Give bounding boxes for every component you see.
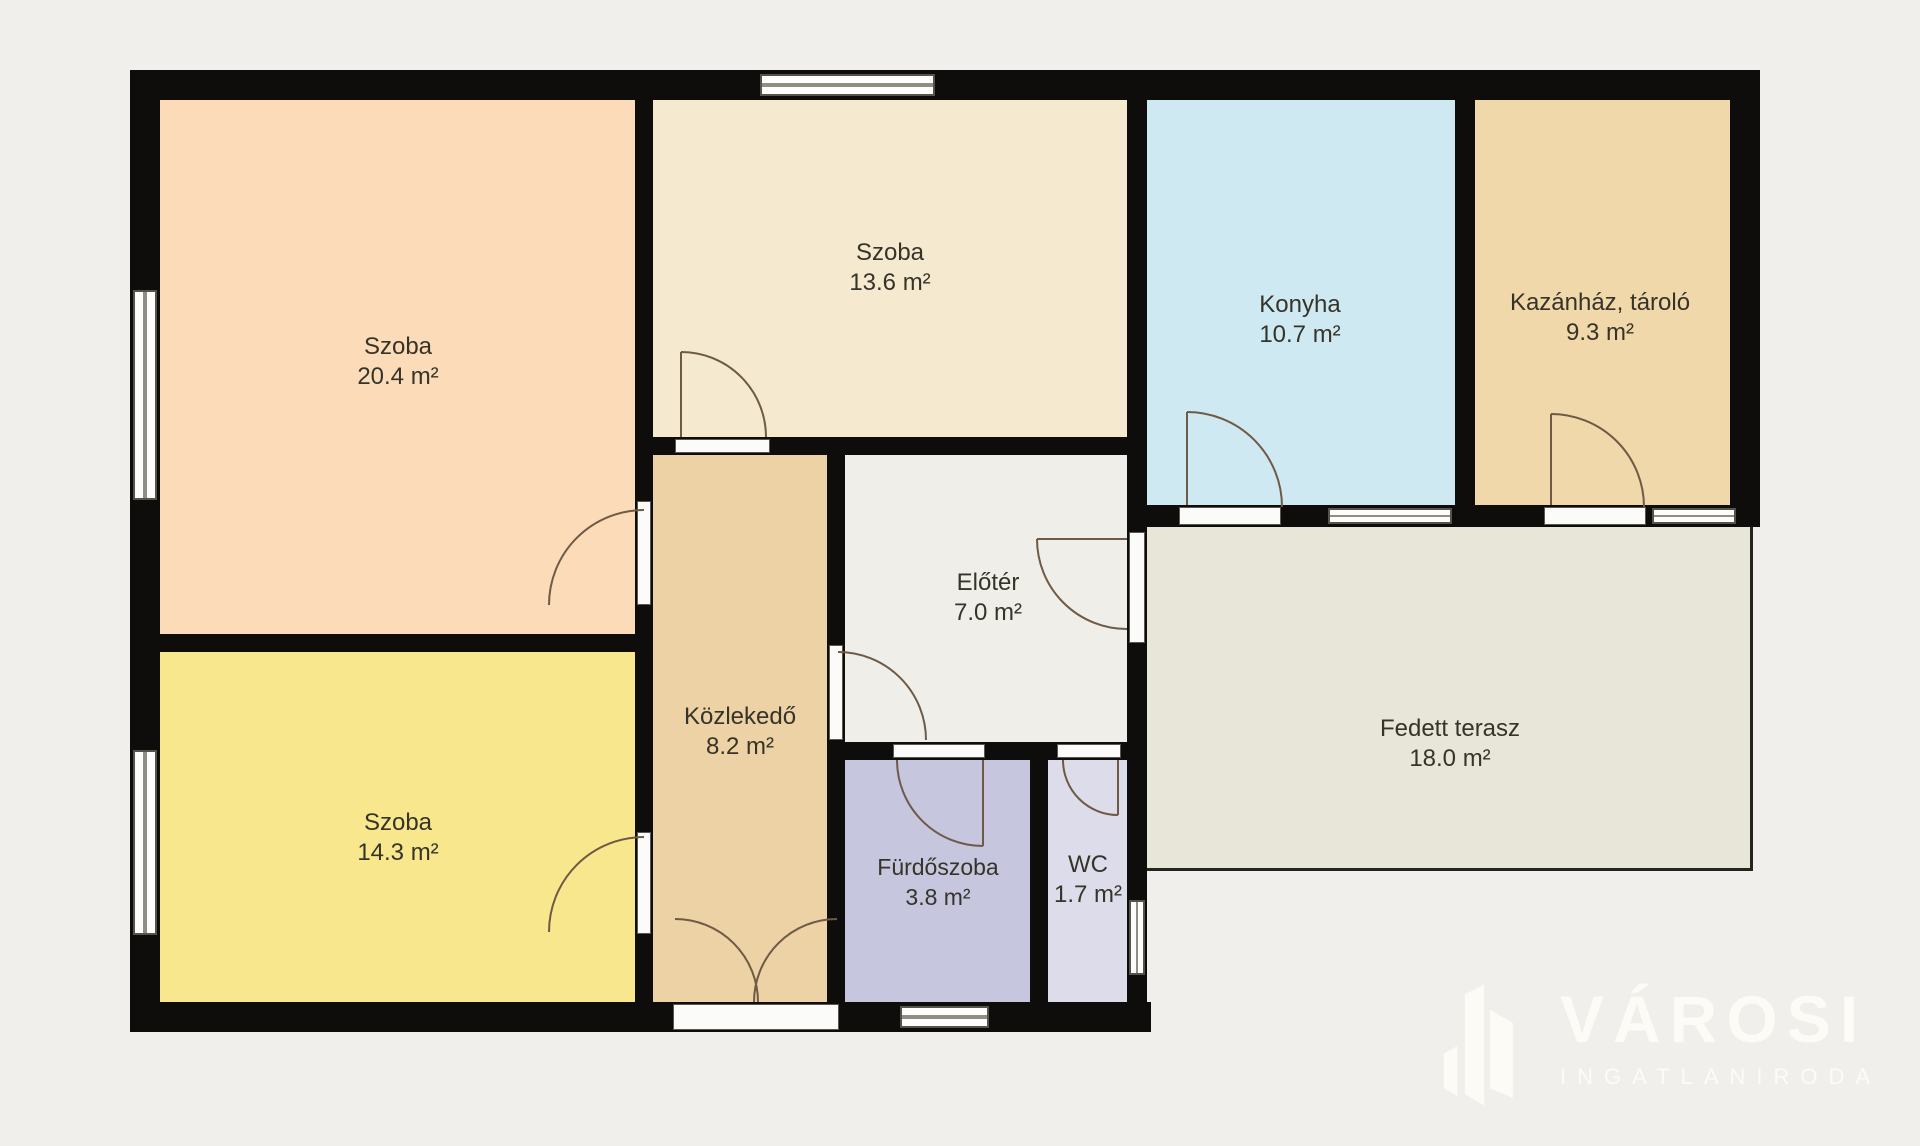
- room-name: WC: [1054, 850, 1122, 880]
- room-name: Szoba: [849, 238, 930, 268]
- room-area: 3.8 m²: [877, 882, 998, 912]
- room-name: Közlekedő: [684, 702, 796, 732]
- room-area: 1.7 m²: [1054, 880, 1122, 910]
- door-arc-szoba-large: [549, 510, 644, 605]
- door-arc-entrance-right: [754, 919, 837, 1002]
- buildings-icon: [1438, 984, 1534, 1110]
- room-area: 8.2 m²: [684, 732, 796, 762]
- room-label-kazanhaz: Kazánház, tároló 9.3 m²: [1510, 288, 1690, 348]
- room-name: Szoba: [357, 808, 438, 838]
- door-arc-eloter-entry: [1037, 539, 1127, 629]
- floor-plan: Szoba 20.4 m² Szoba 13.6 m² Konyha 10.7 …: [0, 0, 1920, 1146]
- room-name: Szoba: [357, 332, 438, 362]
- room-name: Fedett terasz: [1380, 714, 1520, 744]
- room-area: 7.0 m²: [954, 598, 1022, 628]
- room-name: Fürdőszoba: [877, 852, 998, 882]
- room-area: 20.4 m²: [357, 362, 438, 392]
- room-label-wc: WC 1.7 m²: [1054, 850, 1122, 910]
- room-name: Előtér: [954, 568, 1022, 598]
- room-area: 9.3 m²: [1510, 318, 1690, 348]
- door-arc-szoba-middle: [681, 352, 766, 437]
- door-arc-szoba-small: [549, 837, 644, 932]
- agency-logo: VÁROSI INGATLANIRODA: [1438, 984, 1881, 1110]
- room-label-eloter: Előtér 7.0 m²: [954, 568, 1022, 628]
- room-name: Konyha: [1259, 290, 1340, 320]
- logo-text: VÁROSI INGATLANIRODA: [1560, 984, 1881, 1090]
- room-area: 18.0 m²: [1380, 744, 1520, 774]
- room-label-szoba-middle: Szoba 13.6 m²: [849, 238, 930, 298]
- room-area: 14.3 m²: [357, 838, 438, 868]
- room-label-szoba-small: Szoba 14.3 m²: [357, 808, 438, 868]
- door-arc-kozlekedo-eloter: [838, 652, 926, 740]
- room-label-kozlekedo: Közlekedő 8.2 m²: [684, 702, 796, 762]
- room-area: 13.6 m²: [849, 268, 930, 298]
- room-label-konyha: Konyha 10.7 m²: [1259, 290, 1340, 350]
- room-area: 10.7 m²: [1259, 320, 1340, 350]
- door-arc-wc: [1063, 760, 1118, 815]
- room-name: Kazánház, tároló: [1510, 288, 1690, 318]
- door-arc-entrance-left: [675, 919, 758, 1002]
- room-label-szoba-large: Szoba 20.4 m²: [357, 332, 438, 392]
- door-arc-kazanhaz: [1551, 414, 1644, 507]
- door-arc-konyha: [1187, 412, 1282, 507]
- door-arc-furdoszoba: [897, 760, 983, 846]
- logo-title: VÁROSI: [1560, 984, 1881, 1054]
- logo-subtitle: INGATLANIRODA: [1560, 1064, 1881, 1090]
- room-label-fedett-terasz: Fedett terasz 18.0 m²: [1380, 714, 1520, 774]
- room-label-furdoszoba: Fürdőszoba 3.8 m²: [877, 852, 998, 912]
